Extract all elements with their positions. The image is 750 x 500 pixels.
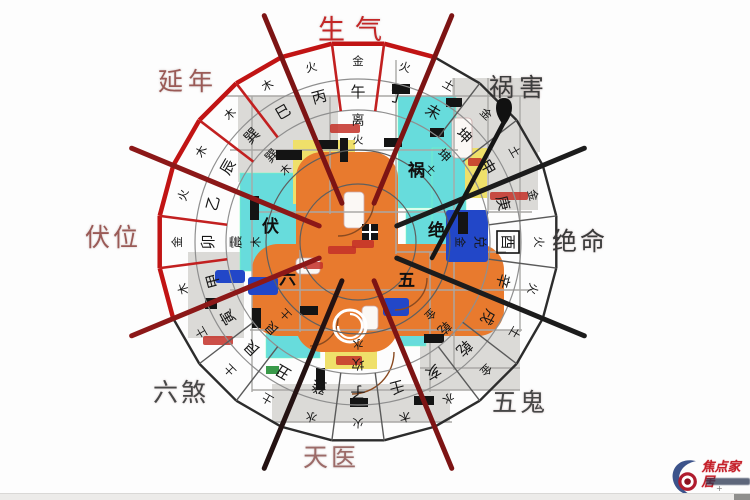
element-char: 火 — [397, 59, 412, 76]
door-marker — [424, 334, 444, 343]
watermark-brand-text: 焦点家居 — [702, 460, 750, 490]
element-char: 火 — [524, 281, 541, 296]
watermark-subtext-blur — [706, 478, 750, 485]
mountain-char: 子 — [350, 383, 365, 401]
outer-polygon-edge — [160, 165, 174, 215]
element-char: 木 — [175, 281, 192, 296]
outer-polygon-edge — [173, 120, 199, 165]
direction-label: 延年 — [158, 62, 218, 98]
outer-polygon-edge — [543, 268, 557, 318]
outer-polygon-edge — [384, 427, 434, 441]
fengshui-bazhai-diagram: 午金丁火未土坤金申土庚金酉火辛火戌土乾金亥水壬木子火癸水丑土艮土寅土甲木卯金乙火… — [0, 0, 750, 500]
mountain-char: 辰 — [217, 156, 240, 178]
mountain-char: 乙 — [202, 194, 223, 213]
element-char: 木 — [259, 76, 276, 94]
element-char: 金 — [352, 54, 364, 68]
trigram-char: 坎 — [351, 356, 364, 371]
sector-spoke — [160, 216, 227, 225]
watermark-logo-icon — [668, 454, 702, 498]
element-char: 火 — [352, 416, 364, 430]
element-char: 金 — [525, 188, 542, 203]
trigram-char: 兑 — [472, 235, 487, 248]
bottom-bar — [0, 493, 750, 500]
sector-spoke — [375, 44, 384, 111]
trigram-element-char: 火 — [353, 134, 364, 147]
outer-polygon-edge — [236, 57, 281, 83]
door-marker — [340, 138, 348, 162]
mansion-char: 伏 — [262, 216, 279, 237]
element-char: 木 — [192, 143, 210, 160]
element-char: 木 — [221, 105, 239, 123]
element-char: 火 — [304, 59, 319, 76]
mountain-char: 卯 — [199, 234, 217, 249]
mountain-char: 艮 — [240, 336, 263, 359]
bottom-bar-dark-segment — [734, 494, 750, 500]
direction-label: 祸害 — [489, 68, 549, 104]
sector-spoke — [489, 216, 556, 225]
mountain-char: 丙 — [310, 86, 329, 107]
trigram-char: 离 — [351, 113, 364, 129]
mountain-char: 癸 — [310, 376, 329, 397]
red-label-mark — [328, 246, 356, 254]
element-char: 土 — [221, 361, 239, 379]
element-char: 火 — [175, 187, 192, 202]
element-char: 火 — [532, 236, 546, 248]
door-marker — [458, 212, 468, 234]
direction-label: 六煞 — [153, 373, 209, 409]
mansion-char: 五 — [398, 271, 415, 291]
outer-polygon-edge — [160, 268, 174, 318]
furniture-white — [344, 192, 364, 228]
mountain-char: 酉 — [499, 234, 517, 249]
door-marker — [300, 306, 318, 315]
outer-polygon-edge — [543, 165, 557, 215]
element-char: 金 — [170, 236, 184, 248]
mountain-char: 午 — [350, 83, 365, 101]
red-label-mark — [352, 240, 374, 248]
trigram-char: 震 — [230, 235, 245, 248]
mansion-char: 祸 — [408, 160, 425, 181]
door-marker — [252, 308, 261, 328]
trigram-element-char: 水 — [353, 338, 364, 351]
direction-label: 绝命 — [552, 222, 608, 258]
direction-label: 五鬼 — [492, 383, 548, 419]
direction-label: 伏位 — [85, 218, 141, 254]
watermark: 焦点家居 — [668, 454, 750, 498]
bottom-corner-mark: + — [716, 484, 723, 493]
trigram-element-char: 金 — [454, 237, 468, 248]
direction-label: 生气 — [318, 8, 392, 47]
trigram-element-char: 木 — [250, 237, 263, 248]
element-char: 木 — [397, 409, 412, 426]
mountain-char: 丑 — [272, 360, 294, 383]
direction-label: 天医 — [303, 438, 359, 474]
